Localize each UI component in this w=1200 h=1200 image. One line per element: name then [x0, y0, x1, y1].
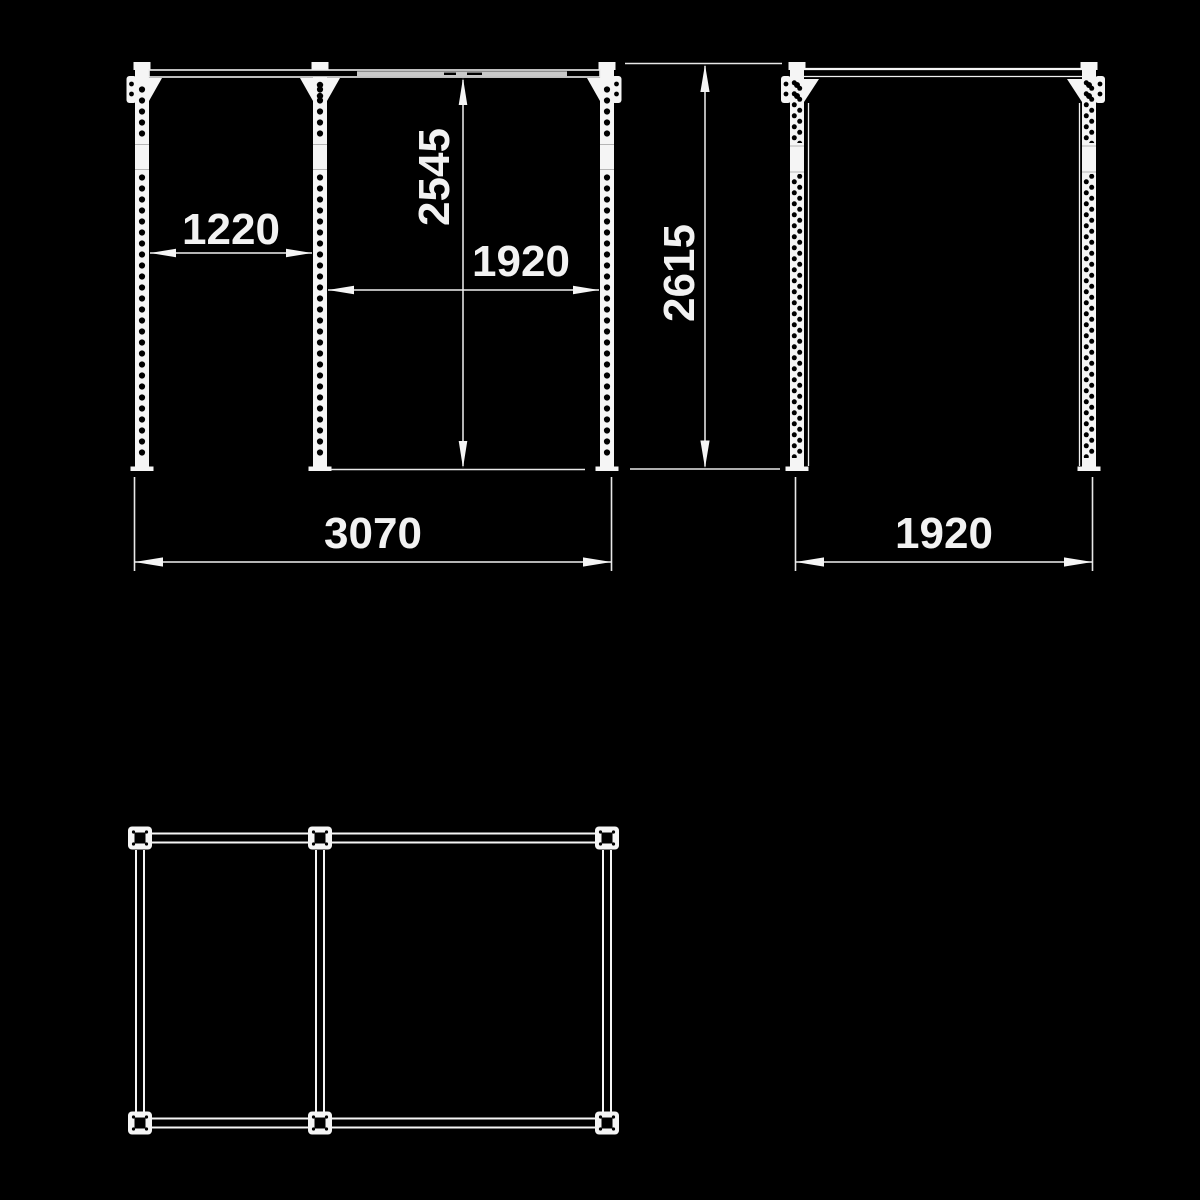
foot-plate — [786, 467, 809, 472]
dimension-3070: 3070 — [135, 477, 612, 571]
dimension-2615: 2615 — [625, 64, 782, 470]
plan-node — [308, 1112, 332, 1135]
side-gussets — [781, 76, 1105, 103]
bar-knurl-mark — [444, 73, 456, 75]
dimension-label: 1920 — [472, 237, 570, 286]
dimension-label: 2545 — [410, 128, 459, 226]
dimension-label: 1220 — [182, 205, 280, 254]
plan-horizontal-tubes — [152, 834, 595, 1128]
side-post-right — [1078, 62, 1101, 471]
dimension-1220: 1220 — [150, 205, 312, 257]
foot-plate — [309, 467, 332, 472]
front-post-middle — [309, 62, 332, 471]
dimension-2545: 2545 — [410, 78, 467, 468]
bar-knurl-mark — [467, 73, 482, 75]
plan-view — [128, 827, 619, 1135]
foot-plate — [596, 467, 619, 472]
foot-plate — [1078, 467, 1101, 472]
front-top-tube — [149, 70, 600, 77]
plan-vertical-tubes — [136, 850, 611, 1112]
plan-post-nodes — [128, 827, 619, 1135]
plan-node — [128, 827, 152, 850]
plan-node — [595, 1112, 619, 1135]
foot-plate — [131, 467, 154, 472]
side-post-left — [786, 62, 809, 471]
side-elevation-view — [781, 62, 1105, 471]
side-top-tube — [804, 69, 1082, 77]
pullup-bar — [357, 71, 567, 76]
dimension-label: 2615 — [655, 224, 704, 322]
front-gussets — [127, 76, 622, 103]
front-post-left — [131, 62, 154, 471]
plan-node — [308, 827, 332, 850]
front-post-right — [596, 62, 619, 471]
dimension-label: 1920 — [895, 509, 993, 558]
dimension-label: 3070 — [324, 509, 422, 558]
dimension-1920-side: 1920 — [796, 477, 1093, 571]
drawing-canvas: 1220 2545 1920 2615 3070 1920 — [0, 0, 1200, 1200]
plan-node — [595, 827, 619, 850]
plan-node — [128, 1112, 152, 1135]
